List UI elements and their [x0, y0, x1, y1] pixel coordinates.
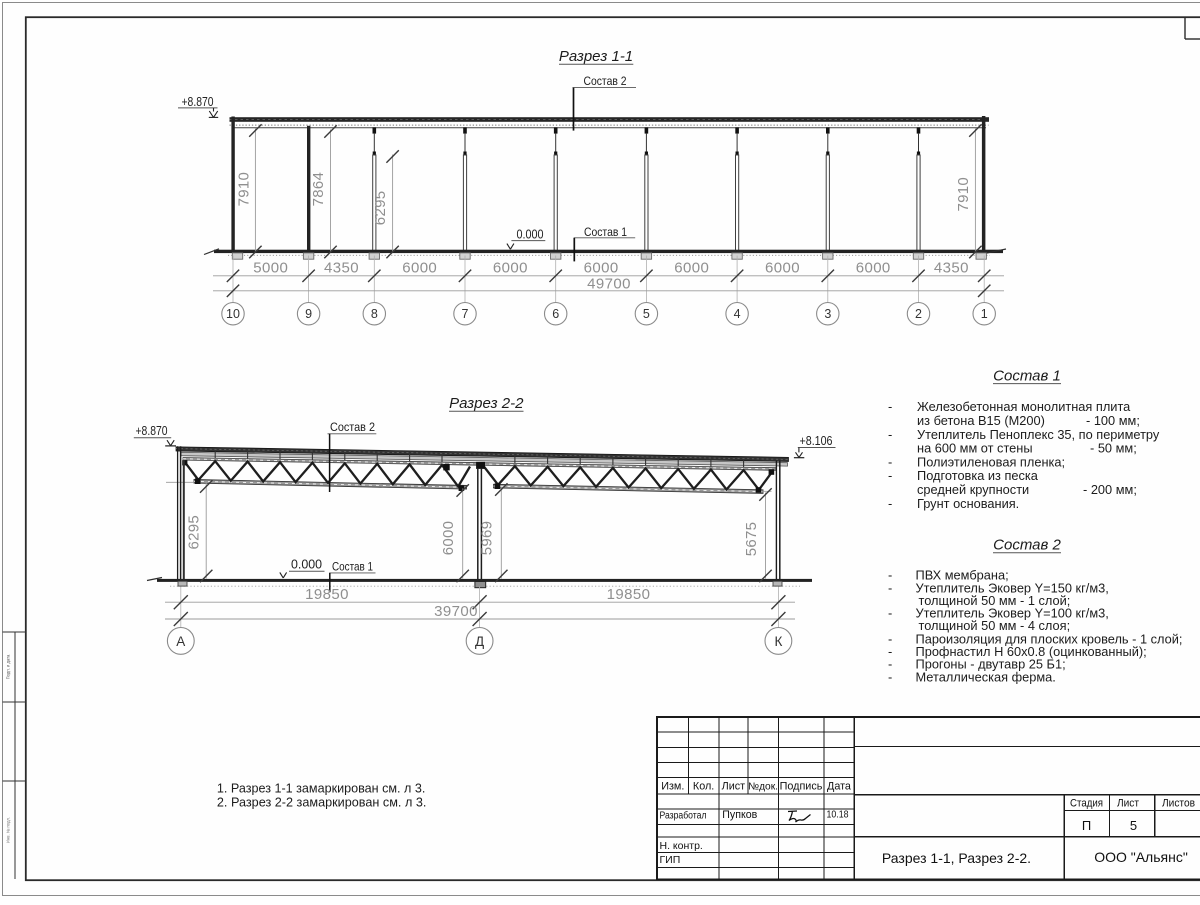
svg-text:9: 9: [305, 307, 312, 321]
svg-text:7: 7: [462, 307, 469, 321]
svg-text:средней крупности: средней крупности: [917, 482, 1029, 497]
svg-text:+8.870: +8.870: [182, 94, 214, 109]
svg-text:1: 1: [981, 307, 988, 321]
svg-text:Листов: Листов: [1162, 797, 1195, 809]
svg-text:0.000: 0.000: [517, 227, 544, 241]
svg-text:Лист: Лист: [722, 780, 746, 792]
svg-text:19850: 19850: [607, 586, 651, 603]
svg-text:+8.870: +8.870: [136, 423, 168, 438]
svg-text:Металлическая ферма.: Металлическая ферма.: [916, 670, 1056, 685]
svg-text:Разрез 2-2: Разрез 2-2: [449, 395, 524, 412]
svg-text:39700: 39700: [434, 603, 478, 620]
svg-text:из бетона В15 (М200): из бетона В15 (М200): [917, 413, 1045, 428]
svg-text:6000: 6000: [765, 259, 800, 276]
svg-text:- 100 мм;: - 100 мм;: [1086, 413, 1140, 428]
svg-text:2: 2: [915, 307, 922, 321]
svg-text:3: 3: [824, 307, 831, 321]
svg-text:Подпись: Подпись: [780, 780, 823, 792]
svg-text:5000: 5000: [253, 259, 288, 276]
svg-text:6: 6: [552, 307, 559, 321]
svg-text:К: К: [774, 634, 782, 649]
svg-text:на 600 мм от стены: на 600 мм от стены: [917, 441, 1033, 456]
svg-text:-: -: [888, 468, 892, 483]
svg-text:Разрез 1-1: Разрез 1-1: [559, 48, 633, 65]
svg-text:7910: 7910: [955, 177, 972, 212]
svg-text:-: -: [888, 496, 892, 511]
svg-text:6000: 6000: [674, 259, 709, 276]
svg-text:-: -: [888, 670, 892, 685]
svg-text:Разработал: Разработал: [660, 810, 707, 822]
svg-text:49700: 49700: [587, 275, 631, 292]
svg-text:Д: Д: [475, 634, 484, 649]
svg-text:Кол.: Кол.: [693, 780, 714, 792]
svg-text:А: А: [176, 634, 185, 649]
svg-text:- 50 мм;: - 50 мм;: [1090, 441, 1137, 456]
svg-text:7910: 7910: [235, 172, 252, 207]
svg-text:0.000: 0.000: [291, 557, 322, 571]
svg-text:5675: 5675: [743, 522, 760, 557]
svg-text:Состав 2: Состав 2: [993, 537, 1061, 554]
svg-text:Стадия: Стадия: [1070, 797, 1103, 809]
svg-text:5969: 5969: [479, 521, 496, 556]
svg-text:6000: 6000: [493, 259, 528, 276]
svg-text:2. Разрез 2-2 замаркирован см.: 2. Разрез 2-2 замаркирован см. л 3.: [217, 795, 427, 810]
svg-text:Дата: Дата: [827, 780, 851, 792]
svg-text:Пупков: Пупков: [722, 809, 757, 821]
svg-text:8: 8: [371, 307, 378, 321]
svg-text:-: -: [888, 427, 892, 442]
svg-text:Состав 2: Состав 2: [584, 74, 627, 88]
svg-text:ГИП: ГИП: [660, 854, 681, 866]
svg-text:7864: 7864: [310, 172, 327, 207]
svg-text:5: 5: [1130, 818, 1137, 833]
svg-text:Подп. и дата: Подп. и дата: [6, 654, 11, 679]
svg-text:Утеплитель Пеноплекс 35, по пе: Утеплитель Пеноплекс 35, по периметру: [917, 427, 1160, 442]
svg-text:Подготовка из песка: Подготовка из песка: [917, 468, 1039, 483]
svg-text:- 200 мм;: - 200 мм;: [1083, 482, 1137, 497]
svg-text:1. Разрез 1-1 замаркирован см.: 1. Разрез 1-1 замаркирован см. л 3.: [217, 781, 426, 796]
svg-text:-: -: [888, 399, 892, 414]
svg-text:Разрез 1-1, Разрез 2-2.: Разрез 1-1, Разрез 2-2.: [882, 850, 1031, 866]
svg-text:Грунт основания.: Грунт основания.: [917, 496, 1019, 511]
svg-text:6295: 6295: [372, 191, 389, 226]
svg-text:10.18: 10.18: [827, 810, 849, 821]
svg-text:Состав 2: Состав 2: [330, 420, 375, 434]
svg-text:Состав 1: Состав 1: [993, 368, 1061, 385]
svg-text:-: -: [888, 580, 892, 595]
svg-text:6295: 6295: [185, 515, 202, 550]
svg-text:10: 10: [226, 307, 240, 321]
svg-text:6000: 6000: [402, 259, 437, 276]
svg-text:Изм.: Изм.: [661, 780, 684, 792]
svg-text:Н. контр.: Н. контр.: [660, 840, 703, 852]
svg-text:Железобетонная монолитная пли: Железобетонная монолитная плита: [917, 399, 1131, 414]
svg-text:4350: 4350: [934, 259, 969, 276]
svg-text:4350: 4350: [324, 259, 359, 276]
svg-text:№док.: №док.: [748, 781, 778, 792]
svg-text:Состав 1: Состав 1: [584, 225, 627, 239]
svg-text:6000: 6000: [584, 259, 619, 276]
svg-text:19850: 19850: [305, 586, 349, 603]
svg-text:5: 5: [643, 307, 650, 321]
svg-text:+8.106: +8.106: [800, 433, 833, 448]
svg-text:Инв. № подл.: Инв. № подл.: [6, 817, 11, 843]
svg-text:Состав 1: Состав 1: [332, 559, 373, 573]
svg-text:ООО "Альянс": ООО "Альянс": [1094, 849, 1188, 865]
svg-text:4: 4: [734, 307, 741, 321]
svg-text:Лист: Лист: [1117, 797, 1139, 809]
svg-text:-: -: [888, 606, 892, 621]
svg-text:П: П: [1082, 818, 1091, 833]
svg-text:6000: 6000: [856, 259, 891, 276]
svg-text:6000: 6000: [440, 521, 457, 556]
